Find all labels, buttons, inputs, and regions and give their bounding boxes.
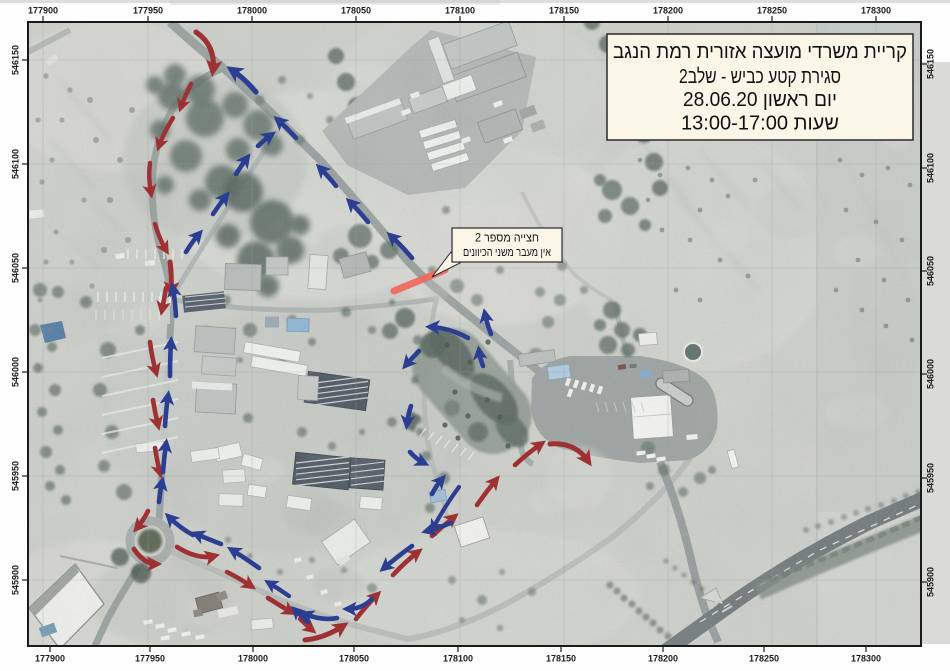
svg-text:שעות 13:00-17:00: שעות 13:00-17:00 [681,113,839,135]
svg-text:546150: 546150 [926,49,936,79]
svg-text:177900: 177900 [28,6,58,16]
svg-text:178050: 178050 [341,6,371,16]
svg-text:178050: 178050 [339,654,369,664]
svg-text:אין מעבר משני הכיוונים: אין מעבר משני הכיוונים [463,247,552,259]
svg-text:178200: 178200 [653,6,683,16]
svg-text:545950: 545950 [11,461,21,491]
svg-text:178150: 178150 [549,6,579,16]
svg-text:545950: 545950 [926,463,936,493]
svg-text:546050: 546050 [11,253,21,283]
svg-text:177950: 177950 [135,654,165,664]
svg-text:178100: 178100 [443,654,473,664]
svg-text:177900: 177900 [35,654,65,664]
svg-text:546050: 546050 [926,256,936,286]
svg-text:יום ראשון 28.06.20: יום ראשון 28.06.20 [683,89,837,111]
svg-text:178000: 178000 [237,6,267,16]
svg-text:545900: 545900 [926,567,936,597]
svg-text:178000: 178000 [238,654,268,664]
svg-text:546100: 546100 [926,153,936,183]
svg-text:546000: 546000 [11,357,21,387]
svg-text:178100: 178100 [445,6,475,16]
svg-text:חצייה מספר 2: חצייה מספר 2 [475,233,539,245]
svg-text:178300: 178300 [861,6,891,16]
svg-text:545900: 545900 [11,565,21,595]
svg-text:178150: 178150 [546,654,576,664]
svg-text:178250: 178250 [749,654,779,664]
svg-text:546150: 546150 [11,45,21,75]
svg-text:178250: 178250 [757,6,787,16]
svg-text:546000: 546000 [926,359,936,389]
svg-text:קריית משרדי מועצה אזורית רמת ה: קריית משרדי מועצה אזורית רמת הנגב [613,41,907,63]
svg-text:178300: 178300 [851,654,881,664]
svg-text:סגירת קטע כביש - שלב2: סגירת קטע כביש - שלב2 [679,66,841,88]
svg-text:546100: 546100 [11,149,21,179]
svg-text:178200: 178200 [648,654,678,664]
svg-text:177950: 177950 [133,6,163,16]
